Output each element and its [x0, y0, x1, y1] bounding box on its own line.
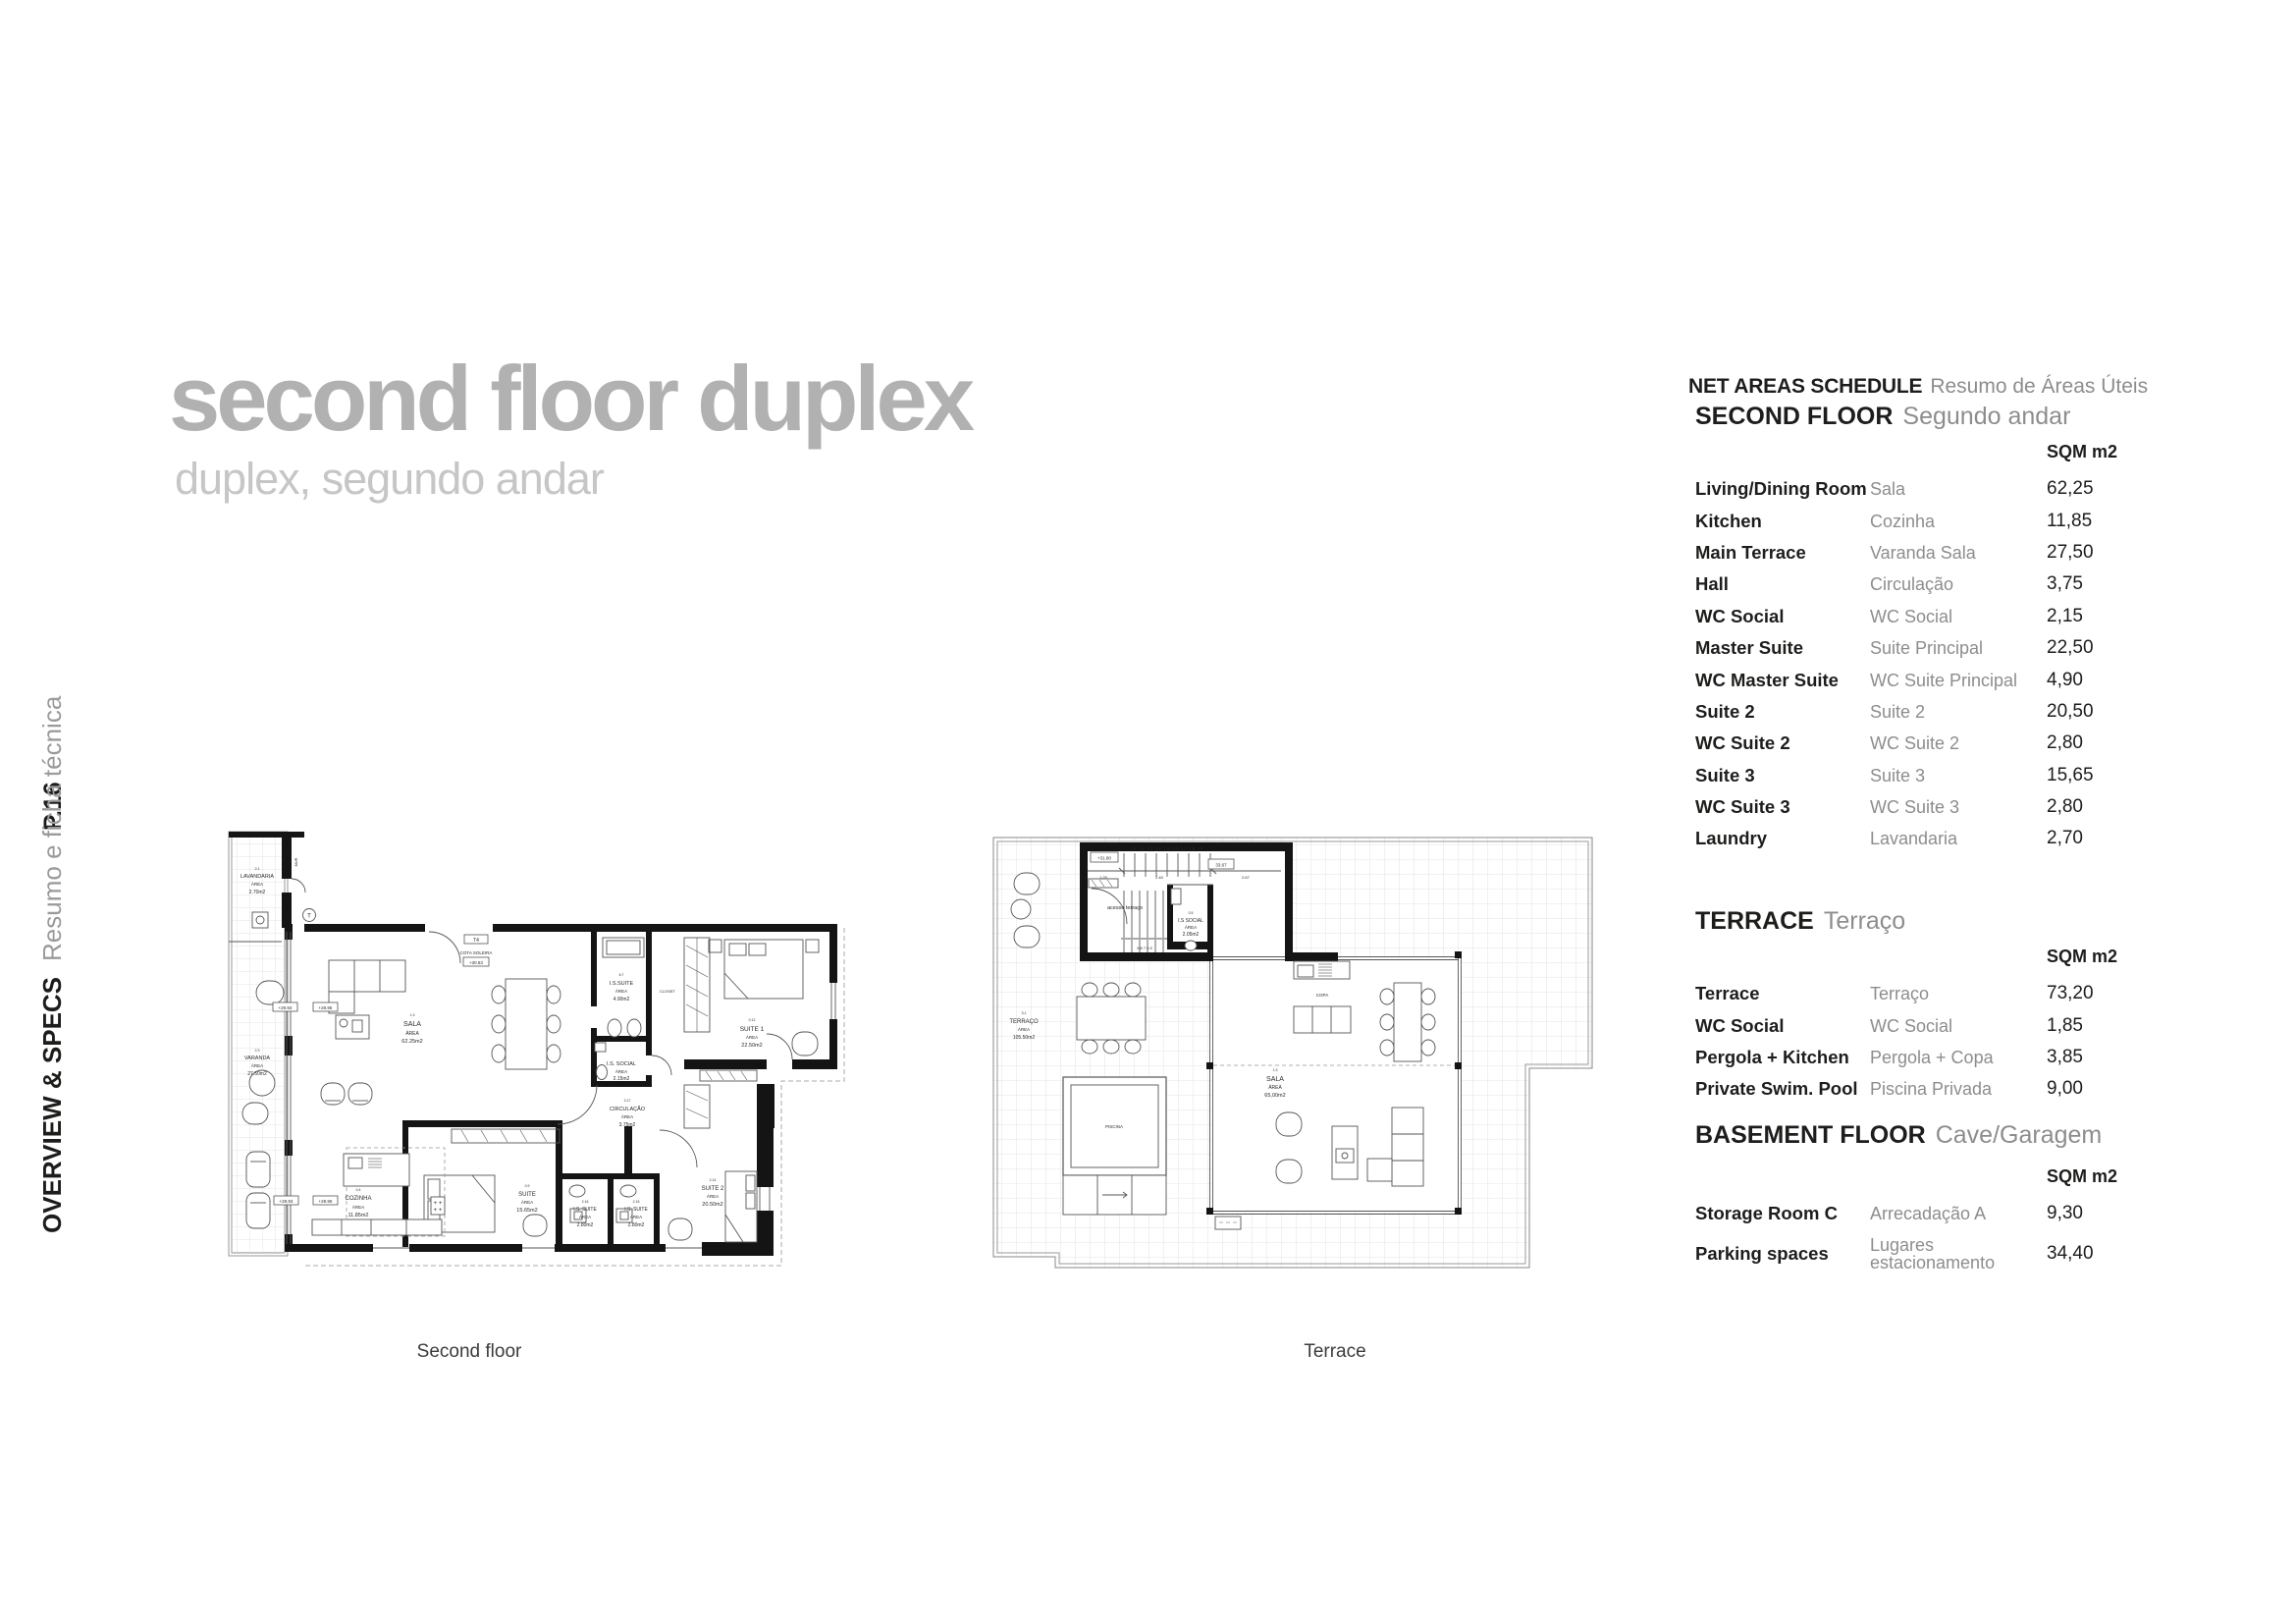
- svg-text:I.S SOCIAL: I.S SOCIAL: [1178, 918, 1203, 924]
- room-pt: WC Social: [1870, 608, 2047, 625]
- room-en: Main Terrace: [1695, 542, 1870, 564]
- room-en: WC Suite 2: [1695, 732, 1870, 754]
- level-marker: +29.95: [319, 1199, 333, 1204]
- svg-text:SUITE 1: SUITE 1: [740, 1026, 765, 1033]
- room-label-is-social: I.S. SOCIAL ÁREA 2.15m2: [607, 1061, 636, 1082]
- room-pt: Piscina Privada: [1870, 1080, 2047, 1098]
- schedule-title: NET AREAS SCHEDULEResumo de Áreas Úteis: [1688, 375, 2148, 399]
- svg-text:ÁREA: ÁREA: [707, 1193, 719, 1199]
- room-pt: WC Suite 2: [1870, 734, 2047, 752]
- table-row: Private Swim. PoolPiscina Privada9,00: [1695, 1073, 2120, 1105]
- room-sqm: 2,70: [2047, 828, 2120, 849]
- room-pt: Terraço: [1870, 985, 2047, 1002]
- svg-text:ÁREA: ÁREA: [630, 1214, 642, 1219]
- room-sqm: 2,80: [2047, 732, 2120, 754]
- table-row: WC Suite 3WC Suite 32,80: [1695, 791, 2120, 823]
- room-sqm: 22,50: [2047, 637, 2120, 659]
- svg-text:I.S. SUITE: I.S. SUITE: [624, 1207, 648, 1213]
- svg-text:2.70m2: 2.70m2: [249, 890, 266, 895]
- marker-cota-val: +30.53: [469, 960, 483, 965]
- room-pt: WC Suite 3: [1870, 798, 2047, 816]
- svg-text:ÁREA: ÁREA: [615, 1068, 627, 1074]
- svg-text:22.50m2: 22.50m2: [741, 1043, 762, 1049]
- room-sqm: 34,40: [2047, 1243, 2120, 1265]
- section-name-pt: Terraço: [1824, 907, 1905, 935]
- level-marker: +29.93: [279, 1005, 293, 1010]
- svg-text:+ +: + +: [434, 1208, 443, 1214]
- svg-text:I.S. SUITE: I.S. SUITE: [573, 1207, 597, 1213]
- room-en: Private Swim. Pool: [1695, 1078, 1870, 1100]
- plan-markers: T MUR +29.93 +29.95 +29.93 +29.95 T4 COT…: [273, 857, 492, 1205]
- room-label-acesso: acesso terraço: [1107, 905, 1143, 911]
- room-en: Pergola + Kitchen: [1695, 1047, 1870, 1068]
- svg-text:0.4: 0.4: [356, 1188, 361, 1192]
- table-row: WC Suite 2WC Suite 22,80: [1695, 728, 2120, 759]
- svg-text:ÁREA: ÁREA: [621, 1113, 633, 1119]
- svg-text:4.90m2: 4.90m2: [614, 997, 630, 1002]
- room-en: Kitchen: [1695, 511, 1870, 532]
- room-pt: Lavandaria: [1870, 830, 2047, 847]
- svg-text:105.50m2: 105.50m2: [1013, 1035, 1035, 1041]
- svg-text:65,00m2: 65,00m2: [1264, 1093, 1285, 1099]
- marker-cota: COTA SOLEIRA: [460, 950, 493, 955]
- caption-terrace: Terrace: [1304, 1341, 1365, 1363]
- table-row: WC Master SuiteWC Suite Principal4,90: [1695, 664, 2120, 695]
- page-subtitle: duplex, segundo andar: [175, 454, 604, 505]
- section-heading-terrace: TERRACETerraço: [1695, 907, 1905, 936]
- room-sqm: 2,80: [2047, 796, 2120, 818]
- room-pt: Suite Principal: [1870, 639, 2047, 657]
- marker-mur: MUR: [294, 857, 298, 866]
- table-row: Parking spacesLugares estacionamento34,4…: [1695, 1229, 2120, 1278]
- room-sqm: 4,90: [2047, 670, 2120, 691]
- room-pt: WC Social: [1870, 1017, 2047, 1035]
- room-en: Suite 2: [1695, 701, 1870, 723]
- svg-text:3.1: 3.1: [1022, 1011, 1027, 1015]
- svg-text:15.65m2: 15.65m2: [516, 1208, 537, 1214]
- room-pt: Circulação: [1870, 575, 2047, 593]
- room-pt: Suite 2: [1870, 703, 2047, 721]
- unit-header: SQM m2: [2047, 442, 2117, 462]
- floor-plan-second-floor: + ++ + T MUR +29.93 +29.95 +29.93 +29.95…: [211, 818, 854, 1279]
- table-row: WC SocialWC Social2,15: [1695, 601, 2120, 632]
- level-marker: +31.80: [1097, 856, 1111, 861]
- svg-text:ÁREA: ÁREA: [251, 1062, 263, 1068]
- svg-text:+ +: + +: [434, 1201, 443, 1207]
- level-marker: +29.95: [319, 1005, 333, 1010]
- brochure-page: P.16 OVERVIEW & SPECSResumo e ficha técn…: [0, 0, 2296, 1624]
- svg-text:SUITE: SUITE: [518, 1192, 536, 1198]
- room-sqm: 3,75: [2047, 573, 2120, 595]
- dim: 1.20: [1099, 875, 1108, 880]
- table-row: Living/Dining RoomSala62,25: [1695, 473, 2120, 505]
- room-sqm: 1,85: [2047, 1015, 2120, 1037]
- room-label-circulacao: 2.17 CIRCULAÇÃO ÁREA 3.75m2: [610, 1099, 646, 1128]
- schedule-title-en: NET AREAS SCHEDULE: [1688, 375, 1922, 398]
- svg-text:I.S.SUITE: I.S.SUITE: [610, 981, 634, 987]
- svg-text:TERRAÇO: TERRAÇO: [1009, 1019, 1039, 1025]
- section-name-pt: Segundo andar: [1902, 403, 2070, 430]
- svg-text:1.3: 1.3: [1273, 1068, 1278, 1072]
- section-name: SECOND FLOOR: [1695, 403, 1893, 430]
- svg-text:20.50m2: 20.50m2: [702, 1202, 722, 1208]
- room-en: Living/Dining Room: [1695, 478, 1870, 500]
- room-pt: Varanda Sala: [1870, 544, 2047, 562]
- svg-text:ÁREA: ÁREA: [1185, 924, 1197, 930]
- schedule-title-pt: Resumo de Áreas Úteis: [1930, 375, 2148, 398]
- svg-text:62.25m2: 62.25m2: [401, 1039, 422, 1045]
- caption-second-floor: Second floor: [417, 1341, 522, 1363]
- svg-text:2.3: 2.3: [255, 1049, 260, 1053]
- room-pt: WC Suite Principal: [1870, 672, 2047, 689]
- room-pt: Sala: [1870, 480, 2047, 498]
- room-sqm: 73,20: [2047, 983, 2120, 1004]
- dim-marker: 33.67: [1215, 863, 1227, 868]
- svg-text:LAVANDARIA: LAVANDARIA: [240, 874, 274, 880]
- stair-numbers-down: 9 8 7 6 5: [1137, 946, 1152, 950]
- svg-text:I.S. SOCIAL: I.S. SOCIAL: [607, 1061, 636, 1067]
- room-sqm: 9,30: [2047, 1203, 2120, 1224]
- dim: 2.67: [1242, 875, 1251, 880]
- unit-header: SQM m2: [2047, 947, 2117, 967]
- terrace-rows: TerraceTerraço73,20 WC SocialWC Social1,…: [1695, 978, 2120, 1106]
- svg-text:VARANDA: VARANDA: [244, 1056, 271, 1061]
- section-name: BASEMENT FLOOR: [1695, 1121, 1926, 1149]
- room-sqm: 15,65: [2047, 765, 2120, 786]
- svg-text:SALA: SALA: [403, 1021, 421, 1028]
- table-row: TerraceTerraço73,20: [1695, 978, 2120, 1009]
- svg-text:0.12: 0.12: [749, 1018, 756, 1022]
- svg-text:2.14: 2.14: [710, 1178, 717, 1182]
- room-label-closet: CLOSET: [660, 989, 676, 994]
- table-row: Master SuiteSuite Principal22,50: [1695, 632, 2120, 664]
- svg-text:SALA: SALA: [1266, 1076, 1284, 1083]
- room-pt: Lugares estacionamento: [1870, 1236, 1988, 1272]
- room-label-sala: 1.3 SALA ÁREA 62.25m2: [401, 1013, 422, 1045]
- room-en: WC Master Suite: [1695, 670, 1870, 691]
- svg-text:ÁREA: ÁREA: [352, 1204, 364, 1210]
- pool: PISCINA: [1063, 1077, 1166, 1215]
- svg-text:2.15m2: 2.15m2: [614, 1076, 630, 1082]
- table-row: LaundryLavandaria2,70: [1695, 823, 2120, 854]
- sidebar-section-title: OVERVIEW & SPECS: [37, 977, 67, 1233]
- floor-plan-terrace: +31.80 33.67 10 11 13 14 15 16 17 18 19 …: [987, 830, 1600, 1283]
- second-floor-rows: Living/Dining RoomSala62,25 KitchenCozin…: [1695, 473, 2120, 855]
- section-heading-second-floor: SECOND FLOORSegundo andar: [1695, 403, 2070, 431]
- level-marker: +29.93: [280, 1199, 294, 1204]
- svg-text:ÁREA: ÁREA: [521, 1199, 533, 1205]
- stair-numbers-up: 10 11 13 14 15 16 17 18 19: [1131, 846, 1204, 851]
- table-row: Suite 2Suite 220,50: [1695, 696, 2120, 728]
- room-label-suite2: 2.14 SUITE 2 ÁREA 20.50m2: [702, 1178, 724, 1208]
- svg-text:COZINHA: COZINHA: [346, 1196, 372, 1202]
- room-sqm: 3,85: [2047, 1047, 2120, 1068]
- table-row: Pergola + KitchenPergola + Copa3,85: [1695, 1042, 2120, 1073]
- svg-text:SUITE 2: SUITE 2: [702, 1186, 724, 1192]
- room-pt: Cozinha: [1870, 513, 2047, 530]
- sidebar-section-subtitle: Resumo e ficha técnica: [37, 696, 67, 961]
- table-row: KitchenCozinha11,85: [1695, 505, 2120, 536]
- room-en: Hall: [1695, 573, 1870, 595]
- page-title: second floor duplex: [169, 346, 971, 452]
- room-label-cozinha: 0.4 COZINHA ÁREA 11.85m2: [346, 1188, 372, 1218]
- room-sqm: 11,85: [2047, 511, 2120, 532]
- room-sqm: 62,25: [2047, 478, 2120, 500]
- room-en: Laundry: [1695, 828, 1870, 849]
- room-en: WC Social: [1695, 1015, 1870, 1037]
- room-sqm: 9,00: [2047, 1078, 2120, 1100]
- svg-text:1.3: 1.3: [410, 1013, 415, 1017]
- room-pt: Arrecadação A: [1870, 1205, 2047, 1222]
- room-pt: Suite 3: [1870, 767, 2047, 785]
- table-row: HallCirculação3,75: [1695, 568, 2120, 600]
- basement-rows: Storage Room CArrecadação A9,30 Parking …: [1695, 1198, 2120, 1278]
- room-label-copa: COPA: [1316, 993, 1328, 998]
- room-en: WC Suite 3: [1695, 796, 1870, 818]
- svg-text:2.80m2: 2.80m2: [577, 1222, 594, 1228]
- room-label-suite1: 0.12 SUITE 1 ÁREA 22.50m2: [740, 1018, 765, 1049]
- room-en: Parking spaces: [1695, 1243, 1870, 1265]
- svg-text:2.1: 2.1: [255, 867, 260, 871]
- svg-text:27.50m2: 27.50m2: [247, 1071, 267, 1077]
- room-sqm: 27,50: [2047, 542, 2120, 564]
- svg-text:ÁREA: ÁREA: [405, 1030, 419, 1037]
- svg-text:0.9: 0.9: [525, 1184, 530, 1188]
- svg-text:11.85m2: 11.85m2: [348, 1213, 369, 1218]
- room-label-is-suite: 6.7 I.S.SUITE ÁREA 4.90m2: [610, 973, 634, 1002]
- svg-text:2.16: 2.16: [582, 1200, 589, 1204]
- room-sqm: 20,50: [2047, 701, 2120, 723]
- svg-text:ÁREA: ÁREA: [1268, 1084, 1282, 1091]
- sidebar-section: OVERVIEW & SPECSResumo e ficha técnica: [37, 696, 68, 1233]
- svg-text:2.15: 2.15: [633, 1200, 640, 1204]
- svg-text:CIRCULAÇÃO: CIRCULAÇÃO: [610, 1106, 646, 1112]
- table-row: Storage Room CArrecadação A9,30: [1695, 1198, 2120, 1229]
- svg-text:ÁREA: ÁREA: [579, 1214, 591, 1219]
- room-en: Storage Room C: [1695, 1203, 1870, 1224]
- marker-t: T: [307, 914, 311, 920]
- section-heading-basement: BASEMENT FLOORCave/Garagem: [1695, 1121, 2102, 1150]
- room-en: Master Suite: [1695, 637, 1870, 659]
- room-pt: Pergola + Copa: [1870, 1049, 2047, 1066]
- section-name: TERRACE: [1695, 907, 1814, 935]
- room-sqm: 2,15: [2047, 606, 2120, 627]
- room-label-piscina: PISCINA: [1105, 1124, 1123, 1129]
- table-row: Main TerraceVaranda Sala27,50: [1695, 537, 2120, 568]
- room-en: Terrace: [1695, 983, 1870, 1004]
- room-en: Suite 3: [1695, 765, 1870, 786]
- dim: 2.40: [1155, 875, 1164, 880]
- room-en: WC Social: [1695, 606, 1870, 627]
- room-label-suite: 0.9 SUITE ÁREA 15.65m2: [516, 1184, 537, 1214]
- svg-text:2.17: 2.17: [624, 1099, 631, 1103]
- table-row: Suite 3Suite 315,65: [1695, 760, 2120, 791]
- svg-text:0.5: 0.5: [1189, 911, 1194, 915]
- svg-text:ÁREA: ÁREA: [251, 881, 263, 887]
- table-row: WC SocialWC Social1,85: [1695, 1009, 2120, 1041]
- svg-text:ÁREA: ÁREA: [1018, 1026, 1030, 1032]
- section-name-pt: Cave/Garagem: [1936, 1121, 2103, 1149]
- svg-text:6.7: 6.7: [619, 973, 624, 977]
- svg-text:ÁREA: ÁREA: [746, 1034, 758, 1040]
- unit-header: SQM m2: [2047, 1166, 2117, 1187]
- svg-text:3.75m2: 3.75m2: [619, 1122, 636, 1128]
- marker-t4: T4: [473, 938, 479, 944]
- svg-text:2.80m2: 2.80m2: [628, 1222, 645, 1228]
- svg-text:ÁREA: ÁREA: [615, 988, 627, 994]
- svg-text:2.05m2: 2.05m2: [1183, 932, 1200, 938]
